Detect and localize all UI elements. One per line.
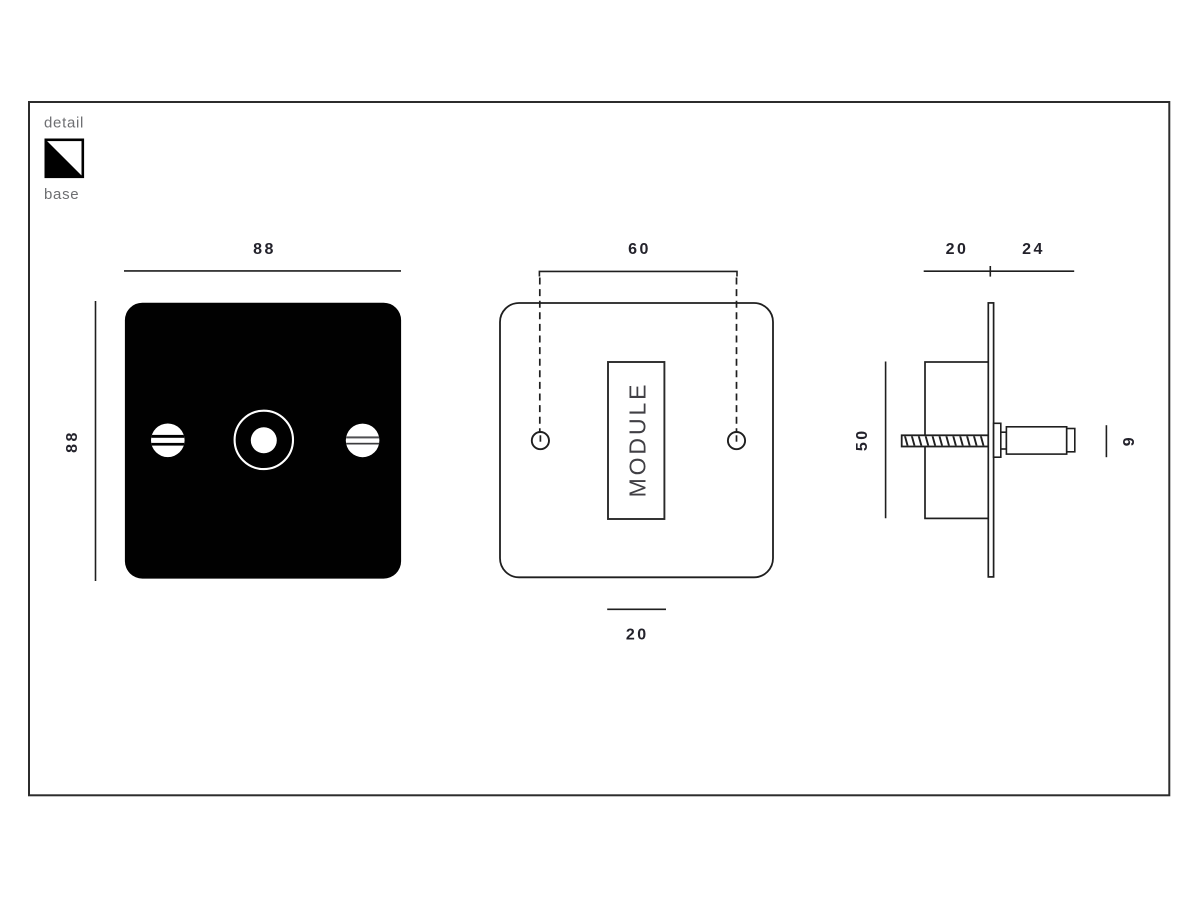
svg-text:detail: detail [44,115,84,132]
svg-text:88: 88 [64,430,81,453]
svg-text:20: 20 [626,627,649,644]
svg-text:20: 20 [946,241,969,258]
svg-text:base: base [44,186,79,203]
svg-text:9: 9 [1121,435,1138,446]
svg-text:50: 50 [854,428,871,451]
svg-text:88: 88 [253,241,276,258]
svg-text:24: 24 [1022,241,1045,258]
svg-text:MODULE: MODULE [624,382,650,498]
svg-text:60: 60 [628,241,651,258]
